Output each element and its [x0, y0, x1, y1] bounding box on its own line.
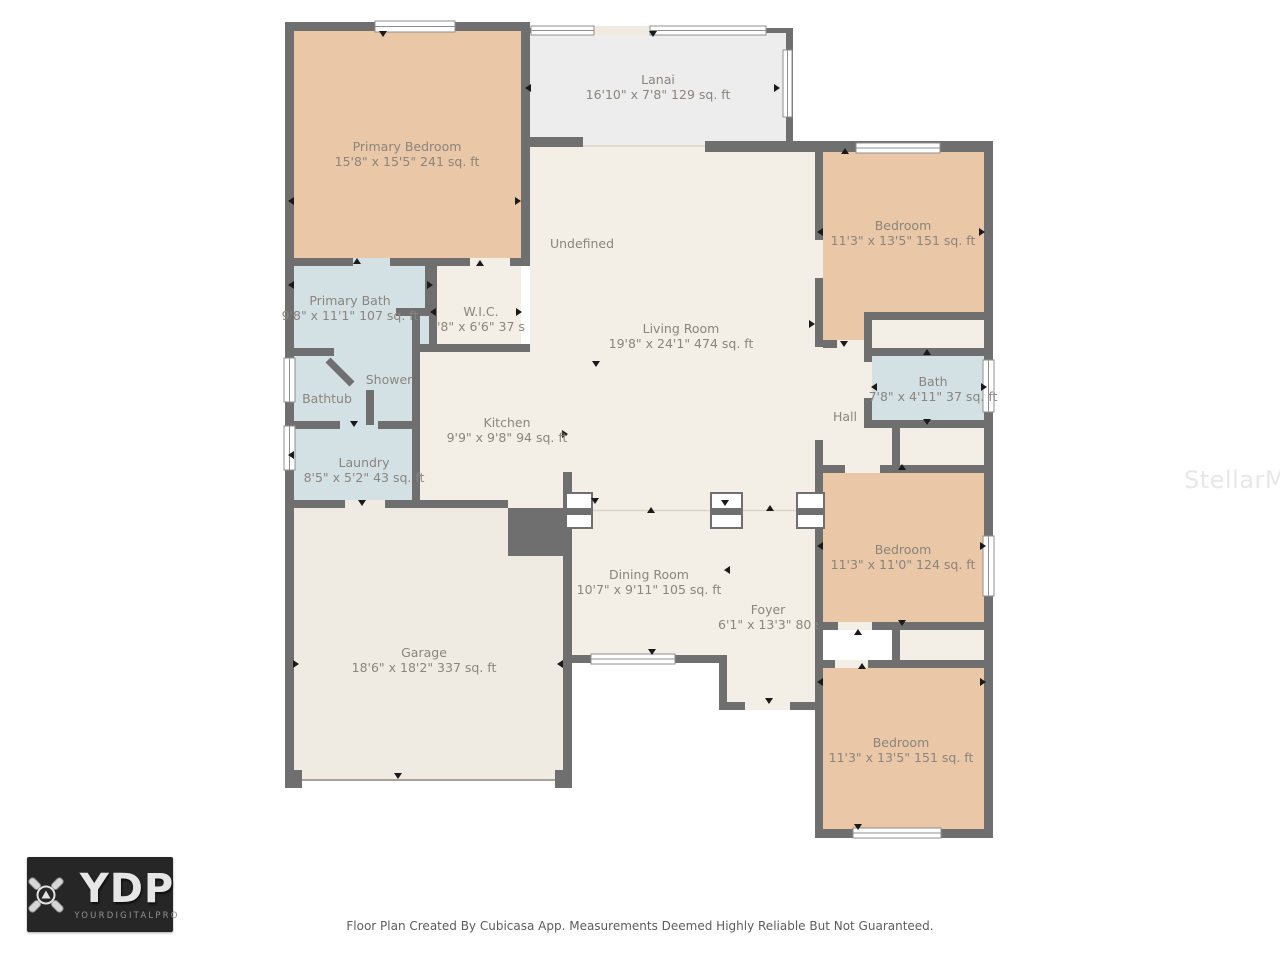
- room-label-garage: Garage18'6" x 18'2" 337 sq. ft: [352, 646, 497, 675]
- ydp-logo-text: YDP YOURDIGITALPRO: [74, 868, 179, 921]
- footer-disclaimer: Floor Plan Created By Cubicasa App. Meas…: [0, 919, 1280, 933]
- room-label-bathtub: Bathtub: [302, 392, 352, 407]
- floorplan-drawing: [0, 0, 1280, 960]
- room-label-laundry: Laundry8'5" x 5'2" 43 sq. ft: [304, 456, 425, 485]
- room-label-bath: Bath7'8" x 4'11" 37 sq. ft: [869, 375, 998, 404]
- ydp-logo-icon: [22, 871, 70, 919]
- room-label-shower: Shower: [366, 373, 413, 388]
- room-label-foyer: Foyer6'1" x 13'3" 80 sq. ft: [718, 603, 818, 632]
- room-label-bedroom-mid: Bedroom11'3" x 11'0" 124 sq. ft: [831, 543, 976, 572]
- lanai-screen-gap: [594, 26, 650, 35]
- room-label-primary-bath: Primary Bath9'8" x 11'1" 107 sq. ft: [282, 294, 419, 323]
- room-label-lanai: Lanai16'10" x 7'8" 129 sq. ft: [586, 73, 731, 102]
- room-label-living-room: Living Room19'8" x 24'1" 474 sq. ft: [609, 322, 754, 351]
- room-label-bedroom-bottom: Bedroom11'3" x 13'5" 151 sq. ft: [829, 736, 974, 765]
- ydp-logo-abbr: YDP: [80, 868, 174, 910]
- room-label-wic: W.I.C.'8" x 6'6" 37 sq. ft: [437, 305, 525, 334]
- room-label-hall: Hall: [833, 410, 857, 425]
- room-label-undefined: Undefined: [550, 237, 614, 252]
- room-label-primary-bedroom: Primary Bedroom15'8" x 15'5" 241 sq. ft: [335, 140, 480, 169]
- room-label-bedroom-top: Bedroom11'3" x 13'5" 151 sq. ft: [831, 219, 976, 248]
- room-label-kitchen: Kitchen9'9" x 9'8" 94 sq. ft: [447, 416, 568, 445]
- floor-plan-page: Primary Bedroom15'8" x 15'5" 241 sq. ft …: [0, 0, 1280, 960]
- room-label-dining-room: Dining Room10'7" x 9'11" 105 sq. ft: [577, 568, 722, 597]
- stellar-mls-watermark: StellarMLS: [1184, 466, 1280, 494]
